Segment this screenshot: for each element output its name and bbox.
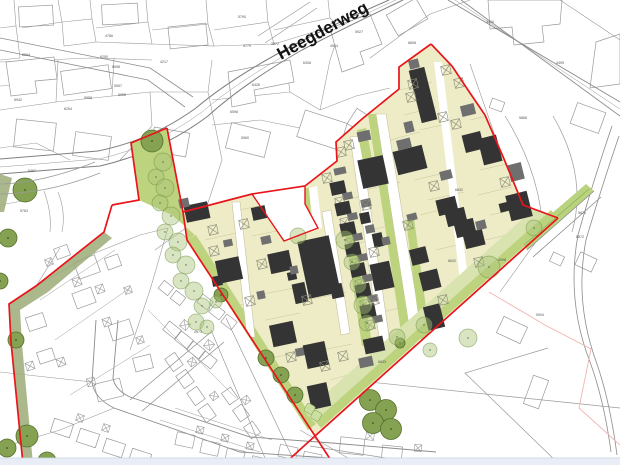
svg-text:6832: 6832 [455, 188, 463, 192]
svg-text:6632: 6632 [448, 259, 456, 263]
svg-text:6598: 6598 [112, 65, 120, 69]
svg-text:5957: 5957 [114, 84, 122, 88]
svg-text:8872: 8872 [576, 235, 584, 239]
svg-text:5790: 5790 [238, 15, 246, 19]
svg-text:5779: 5779 [243, 44, 251, 48]
svg-text:6250: 6250 [100, 55, 108, 59]
svg-text:4598: 4598 [498, 258, 506, 262]
svg-text:5868: 5868 [519, 116, 527, 120]
svg-text:6594: 6594 [22, 53, 30, 57]
svg-text:4217: 4217 [160, 60, 168, 64]
svg-text:5904: 5904 [536, 313, 544, 317]
svg-text:5763: 5763 [20, 209, 28, 213]
svg-text:4973: 4973 [194, 330, 202, 334]
svg-text:6308: 6308 [303, 61, 311, 65]
svg-text:5671: 5671 [578, 211, 586, 215]
svg-text:3410: 3410 [486, 20, 494, 24]
svg-text:6633: 6633 [378, 360, 386, 364]
svg-text:6426: 6426 [252, 83, 260, 87]
svg-text:5958: 5958 [84, 96, 92, 100]
svg-text:5956: 5956 [118, 93, 126, 97]
svg-text:4766: 4766 [105, 34, 113, 38]
svg-text:6598: 6598 [230, 110, 238, 114]
svg-text:5960: 5960 [241, 136, 249, 140]
svg-text:6254: 6254 [64, 107, 72, 111]
svg-text:4499: 4499 [556, 61, 564, 65]
svg-text:5467: 5467 [28, 169, 36, 173]
svg-text:5927: 5927 [355, 30, 363, 34]
svg-text:6808: 6808 [408, 41, 416, 45]
svg-text:4934: 4934 [330, 44, 338, 48]
svg-text:5942: 5942 [14, 98, 22, 102]
